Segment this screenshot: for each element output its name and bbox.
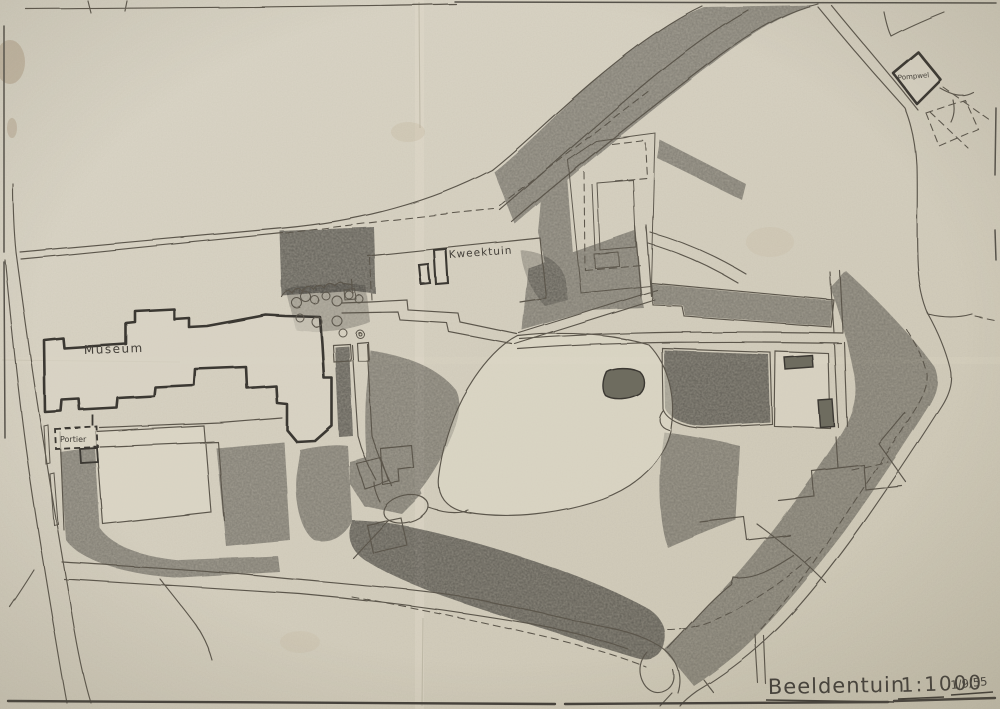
photo-vignette	[0, 0, 1000, 709]
map-drawing: Museum Kweektuin Portier Pompwel Beelden…	[0, 0, 1000, 709]
scanned-map-photo: Museum Kweektuin Portier Pompwel Beelden…	[0, 0, 1000, 709]
